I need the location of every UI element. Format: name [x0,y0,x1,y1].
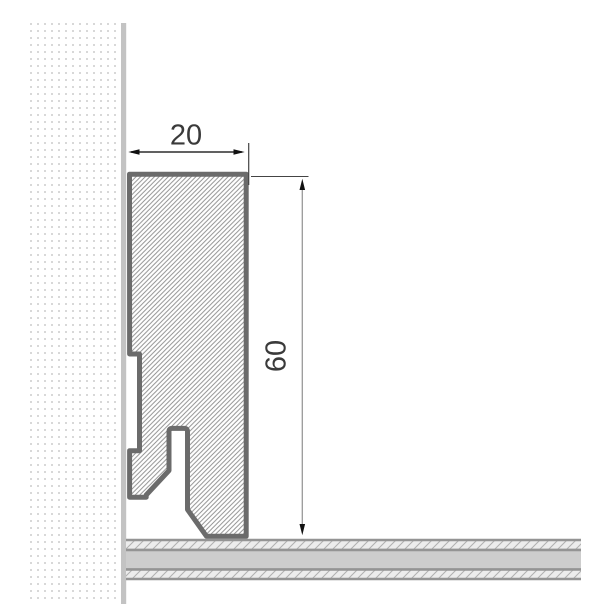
cross-section-drawing [0,0,604,604]
height-dimension-label: 60 [263,340,292,372]
width-arrow-left [128,149,139,155]
floor-bottom-screed-layer [126,570,581,580]
wall-dotted-area [25,23,120,604]
floor-top-screed-layer [126,540,581,550]
floor-middle-layer [126,550,581,570]
drawing-canvas: 20 60 [0,0,604,604]
wall-surface-strip [121,23,126,604]
floor [126,540,581,579]
width-arrow-right [234,149,245,155]
wall [25,23,126,604]
height-arrow-bottom [300,524,306,535]
width-dimension-label: 20 [170,122,202,151]
skirting-profile [130,174,247,536]
height-arrow-top [300,179,306,190]
